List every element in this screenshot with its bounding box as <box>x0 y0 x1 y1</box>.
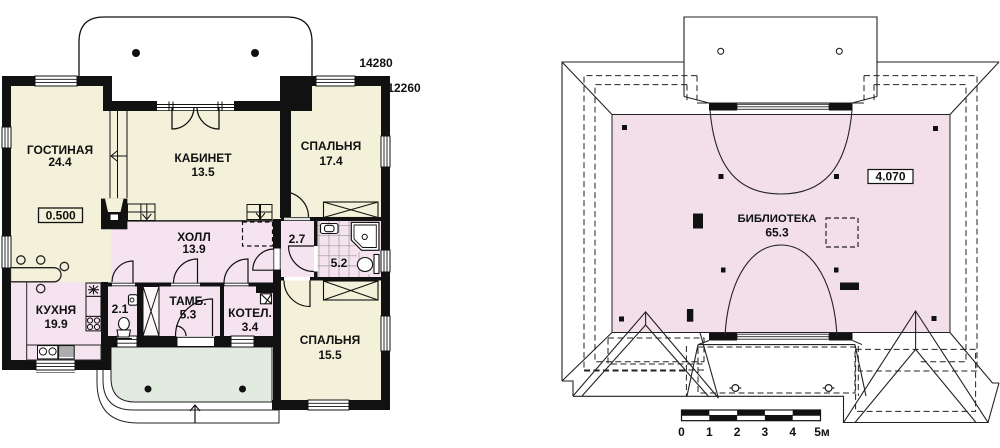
svg-text:4.070: 4.070 <box>875 170 905 184</box>
svg-text:13.9: 13.9 <box>182 242 206 256</box>
svg-text:17.4: 17.4 <box>319 154 343 168</box>
svg-text:2.7: 2.7 <box>289 232 306 246</box>
svg-text:ТАМБ.: ТАМБ. <box>169 294 206 308</box>
svg-text:5.3: 5.3 <box>180 308 197 322</box>
svg-text:3: 3 <box>762 425 769 439</box>
svg-text:13.5: 13.5 <box>191 165 215 179</box>
svg-text:0.500: 0.500 <box>46 208 76 222</box>
svg-text:14280: 14280 <box>359 56 393 70</box>
svg-text:24.4: 24.4 <box>48 155 72 169</box>
svg-text:19.9: 19.9 <box>44 317 68 331</box>
svg-text:СПАЛЬНЯ: СПАЛЬНЯ <box>300 333 360 347</box>
svg-text:БИБЛИОТЕКА: БИБЛИОТЕКА <box>737 213 816 225</box>
svg-text:4: 4 <box>789 425 796 439</box>
svg-text:СПАЛЬНЯ: СПАЛЬНЯ <box>301 139 361 153</box>
svg-text:КОТЕЛ.: КОТЕЛ. <box>228 306 272 320</box>
svg-text:3.4: 3.4 <box>242 320 259 334</box>
svg-text:КАБИНЕТ: КАБИНЕТ <box>174 151 232 165</box>
svg-text:5.2: 5.2 <box>331 256 348 270</box>
svg-text:0: 0 <box>678 425 685 439</box>
svg-text:65.3: 65.3 <box>765 226 789 240</box>
svg-text:1: 1 <box>706 425 713 439</box>
svg-text:2.1: 2.1 <box>112 302 129 316</box>
svg-text:КУХНЯ: КУХНЯ <box>36 303 76 317</box>
svg-text:15.5: 15.5 <box>318 348 342 362</box>
svg-text:2: 2 <box>734 425 741 439</box>
svg-text:12260: 12260 <box>387 81 421 95</box>
svg-text:5м: 5м <box>814 425 830 439</box>
